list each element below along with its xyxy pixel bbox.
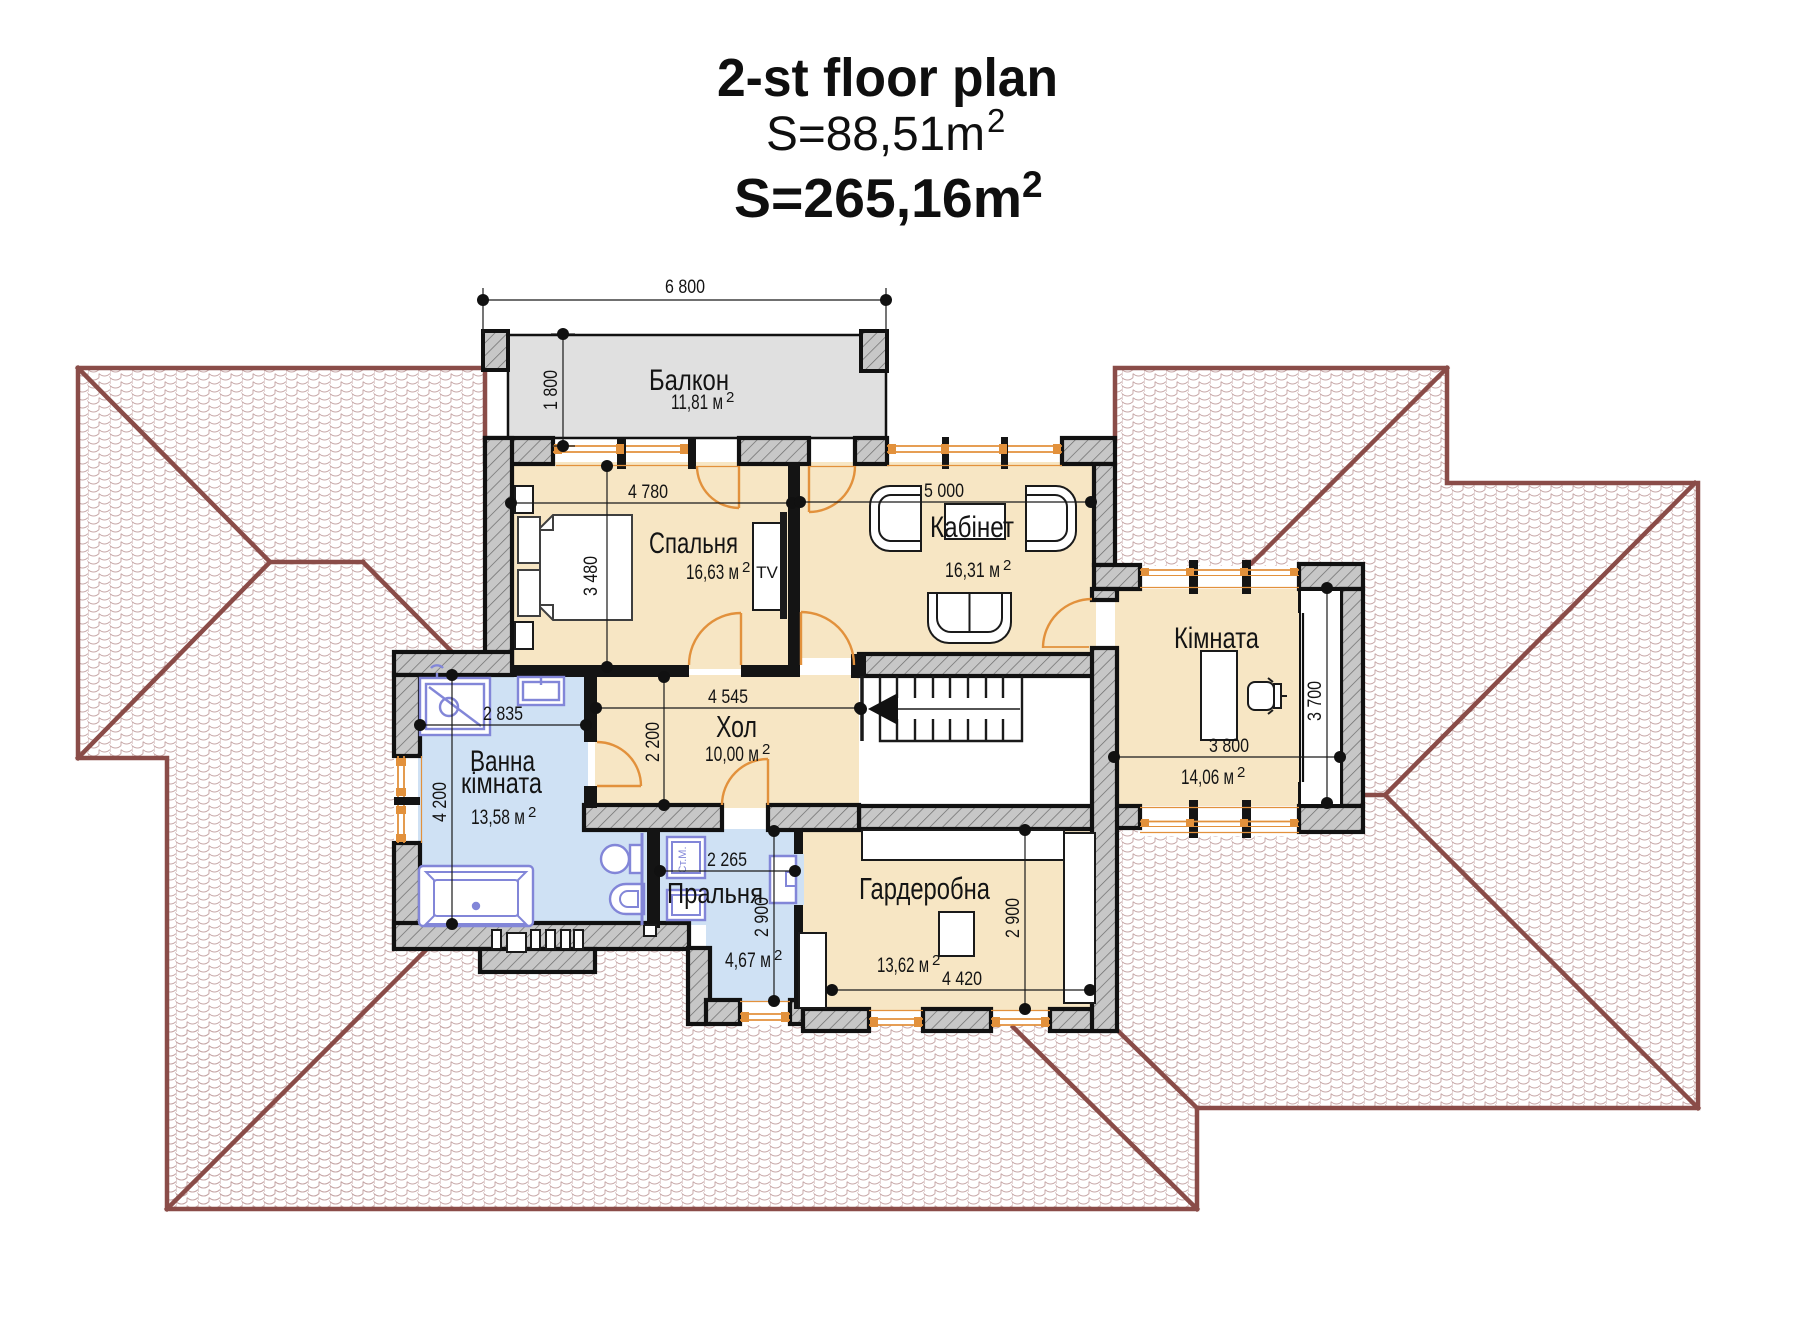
svg-text:1 800: 1 800: [541, 370, 562, 410]
svg-text:4 420: 4 420: [942, 969, 982, 990]
svg-text:2: 2: [762, 741, 770, 758]
svg-text:4 545: 4 545: [708, 687, 748, 708]
svg-text:Спальня: Спальня: [649, 527, 738, 560]
svg-text:S=265,16m: S=265,16m: [734, 167, 1022, 229]
svg-text:2: 2: [1022, 164, 1043, 205]
svg-text:Кімната: Кімната: [1174, 622, 1259, 655]
svg-text:Гардеробна: Гардеробна: [859, 871, 991, 906]
svg-text:3 700: 3 700: [1305, 681, 1326, 721]
svg-text:TV: TV: [756, 563, 778, 582]
svg-text:11,81 м: 11,81 м: [671, 391, 723, 414]
svg-text:2 835: 2 835: [483, 704, 523, 725]
svg-text:4 780: 4 780: [628, 482, 668, 503]
svg-text:2: 2: [1237, 764, 1245, 781]
svg-text:4,67 м: 4,67 м: [725, 949, 771, 972]
svg-text:2: 2: [932, 952, 940, 969]
svg-text:2 900: 2 900: [752, 897, 773, 937]
svg-text:2: 2: [987, 102, 1005, 139]
svg-text:Пральня: Пральня: [667, 878, 763, 910]
svg-text:кімната: кімната: [461, 767, 542, 800]
svg-text:13,62 м: 13,62 м: [877, 954, 929, 977]
svg-text:2 200: 2 200: [643, 722, 664, 762]
svg-text:2: 2: [1003, 557, 1011, 574]
svg-text:14,06 м: 14,06 м: [1181, 766, 1234, 789]
svg-text:2-st floor plan: 2-st floor plan: [717, 48, 1058, 108]
svg-text:13,58 м: 13,58 м: [471, 806, 525, 829]
svg-text:5 000: 5 000: [924, 481, 964, 502]
svg-text:3 480: 3 480: [581, 556, 602, 596]
svg-text:Кабінет: Кабінет: [930, 511, 1014, 544]
svg-text:S=88,51m: S=88,51m: [766, 108, 985, 161]
svg-text:2: 2: [528, 804, 536, 821]
svg-text:2 265: 2 265: [707, 850, 747, 871]
svg-text:Хол: Хол: [716, 709, 757, 744]
svg-text:2: 2: [774, 947, 782, 964]
svg-text:3 800: 3 800: [1209, 736, 1249, 757]
svg-text:16,63 м: 16,63 м: [686, 561, 739, 584]
svg-text:2 900: 2 900: [1003, 898, 1024, 938]
svg-text:10,00 м: 10,00 м: [705, 743, 759, 766]
svg-text:16,31 м: 16,31 м: [945, 559, 1000, 582]
svg-text:Ст.М.: Ст.М.: [677, 846, 689, 873]
svg-text:4 200: 4 200: [430, 782, 451, 822]
svg-text:2: 2: [742, 559, 750, 576]
svg-text:6 800: 6 800: [665, 277, 705, 298]
svg-text:2: 2: [726, 389, 734, 406]
